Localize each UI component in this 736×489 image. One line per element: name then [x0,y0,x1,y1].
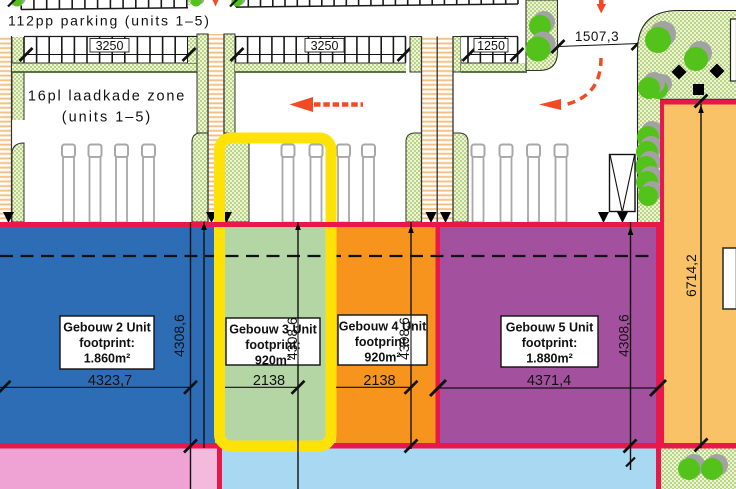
svg-text:4308,6: 4308,6 [616,314,632,357]
svg-text:112pp parking (units 1–5): 112pp parking (units 1–5) [8,13,211,29]
svg-text:16pl laadkade zone: 16pl laadkade zone [28,89,186,105]
svg-text:3250: 3250 [96,39,124,53]
svg-text:1.860m²: 1.860m² [84,352,131,366]
svg-text:1.880m²: 1.880m² [526,352,573,366]
svg-text:Gebouw 2 Unit: Gebouw 2 Unit [63,321,151,335]
svg-text:footprint:: footprint: [522,336,578,350]
svg-text:4323,7: 4323,7 [88,373,132,389]
svg-text:6714,2: 6714,2 [683,254,699,297]
svg-text:Gebouw 4 Unit: Gebouw 4 Unit [339,320,427,334]
svg-text:4308,6: 4308,6 [396,317,412,360]
svg-text:4308,6: 4308,6 [171,314,187,357]
svg-text:Gebouw 3 Unit: Gebouw 3 Unit [229,323,317,337]
svg-text:1250: 1250 [477,39,505,53]
svg-text:2138: 2138 [253,373,285,389]
svg-text:(units 1–5): (units 1–5) [62,110,153,126]
svg-text:4308,6: 4308,6 [284,317,300,360]
svg-text:Gebouw 5 Unit: Gebouw 5 Unit [506,321,594,335]
svg-text:1507,3: 1507,3 [575,29,619,44]
svg-text:footprint:: footprint: [79,336,135,350]
svg-text:2138: 2138 [363,373,395,389]
svg-text:3250: 3250 [311,39,339,53]
svg-text:4371,4: 4371,4 [527,373,571,389]
